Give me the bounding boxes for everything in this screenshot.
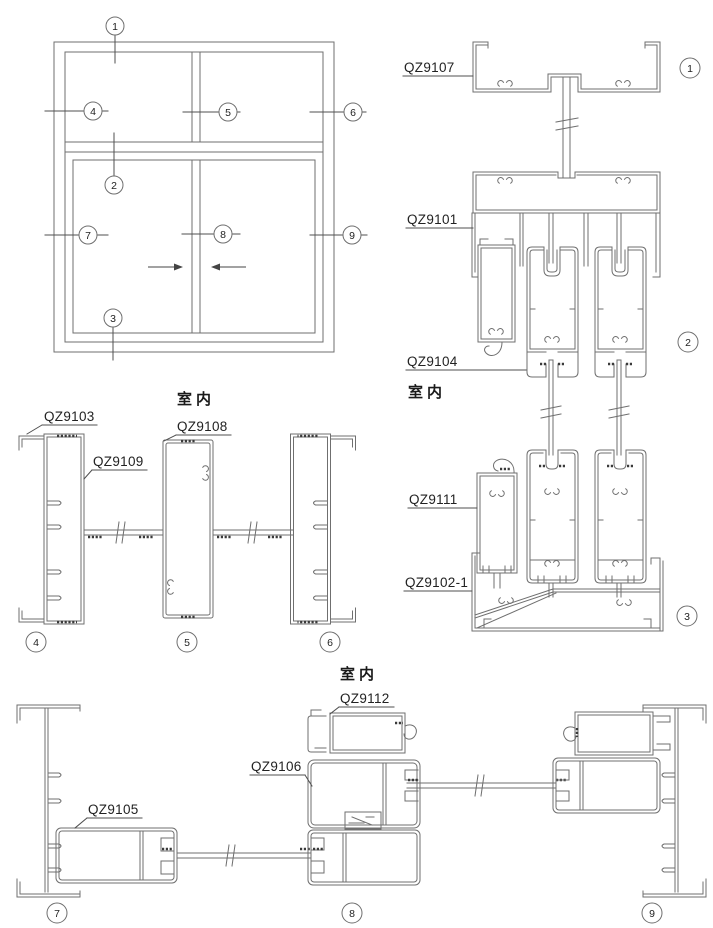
sill-profile-qz9102-1: [472, 553, 663, 631]
marker-number: 1: [112, 21, 118, 33]
marker-number: 9: [649, 908, 655, 920]
profile-label-qz9103: QZ9103: [44, 409, 95, 424]
elevation-marker-8: 8: [214, 225, 232, 243]
glazing-bead-qz9111: [477, 459, 517, 588]
marker-number: 2: [685, 337, 691, 349]
section-marker-3: 3: [677, 606, 697, 626]
profile-label-qz9106: QZ9106: [251, 759, 302, 774]
marker-number: 3: [684, 611, 690, 623]
marker-number: 5: [225, 107, 231, 119]
interior-label: 室内: [408, 383, 446, 401]
marker-number: 9: [349, 230, 355, 242]
elevation-marker-2: 2: [105, 176, 123, 194]
glazing-line: [563, 77, 570, 177]
section-marker-5: 5: [177, 632, 197, 652]
marker-number: 1: [687, 63, 693, 75]
section-marker-9: 9: [642, 903, 662, 923]
section-marker-8: 8: [342, 903, 362, 923]
interior-label: 室内: [177, 390, 215, 408]
transom-box-outline: [473, 172, 660, 213]
elevation-outer-frame: [54, 42, 334, 352]
marker-number: 4: [33, 637, 39, 649]
window-elevation: 1 2 3 4 5 6 7 8 9: [45, 17, 367, 360]
label-leader: [84, 470, 147, 479]
elevation-marker-1: 1: [106, 17, 124, 35]
elevation-marker-5: 5: [219, 103, 237, 121]
glazing-bead-profile: [478, 239, 515, 356]
marker-number: 7: [85, 230, 91, 242]
profile-label-qz9111: QZ9111: [409, 492, 458, 507]
profile-label-qz9108: QZ9108: [177, 419, 228, 434]
section-marker-6: 6: [320, 632, 340, 652]
sash-stile-right-9: [553, 758, 660, 813]
sash-stile-lower-8: [308, 830, 420, 885]
marker-number: 8: [349, 908, 355, 920]
elevation-leader-lines: [45, 35, 367, 360]
profile-label-qz9107: QZ9107: [404, 60, 455, 75]
elevation-marker-9: 9: [343, 226, 361, 244]
sash-stile-qz9105: [56, 828, 177, 883]
label-leader: [75, 818, 142, 828]
marker-number: 6: [327, 637, 333, 649]
interlock-stile-qz9106: [308, 760, 420, 828]
profile-label-qz9112: QZ9112: [340, 691, 390, 706]
marker-number: 6: [350, 107, 356, 119]
section-7-8-9-detail: 室内 QZ9112 QZ9106 QZ9105 7 8 9: [17, 665, 706, 923]
label-leader: [250, 775, 312, 786]
profile-section-drawing: 1 2 3 4 5 6 7 8 9 QZ9107 1 QZ9101 QZ: [0, 0, 713, 928]
marker-number: 3: [110, 313, 116, 325]
section-1-head-detail: QZ9107 1: [403, 42, 700, 177]
fixed-panel-qz9112: [308, 710, 416, 753]
glazing-line-5-6: [213, 522, 293, 543]
glazing-line-8-9: [407, 775, 566, 796]
marker-number: 2: [111, 180, 117, 192]
profile-label-qz9105: QZ9105: [88, 802, 139, 817]
glazing-line-7-8: [177, 845, 311, 866]
glazing-line-4-5: [84, 522, 163, 543]
profile-label-qz9101: QZ9101: [407, 212, 458, 227]
elevation-mullions-and-sashes: [65, 52, 323, 333]
interlock-hook-piece: [345, 812, 381, 829]
marker-number: 7: [54, 908, 60, 920]
section-4-5-6-detail: 室内 QZ9103 QZ9108 QZ9109 4 5 6: [19, 390, 356, 652]
section-marker-4: 4: [26, 632, 46, 652]
profile-label-qz9102-1: QZ9102-1: [405, 575, 468, 590]
profile-label-qz9104: QZ9104: [407, 354, 458, 369]
section-3-sill-detail: QZ9111 QZ9102-1 3: [404, 450, 697, 631]
elevation-inner-frame: [65, 52, 323, 342]
glass-break-symbol: [556, 118, 578, 130]
marker-number: 8: [220, 229, 226, 241]
interior-label: 室内: [340, 665, 378, 683]
head-profile-outline: [473, 42, 660, 92]
profile-label-qz9109: QZ9109: [93, 454, 144, 469]
elevation-marker-6: 6: [344, 103, 362, 121]
marker-number: 5: [184, 637, 190, 649]
elevation-marker-7: 7: [79, 226, 97, 244]
elevation-marker-3: 3: [104, 309, 122, 327]
sliding-direction-arrows: [148, 264, 246, 271]
mullion-profile-qz9108: [163, 440, 213, 618]
fixed-panel-right: [564, 712, 670, 755]
label-leader: [27, 425, 97, 434]
section-marker-2: 2: [678, 332, 698, 352]
section-marker-1: 1: [680, 58, 700, 78]
section-marker-7: 7: [47, 903, 67, 923]
elevation-marker-4: 4: [84, 102, 102, 120]
marker-number: 4: [90, 106, 96, 118]
section-2-transom-detail: QZ9101 QZ9104 室内 2: [406, 172, 698, 455]
drawing-svg: 1 2 3 4 5 6 7 8 9 QZ9107 1 QZ9101 QZ: [0, 0, 713, 928]
